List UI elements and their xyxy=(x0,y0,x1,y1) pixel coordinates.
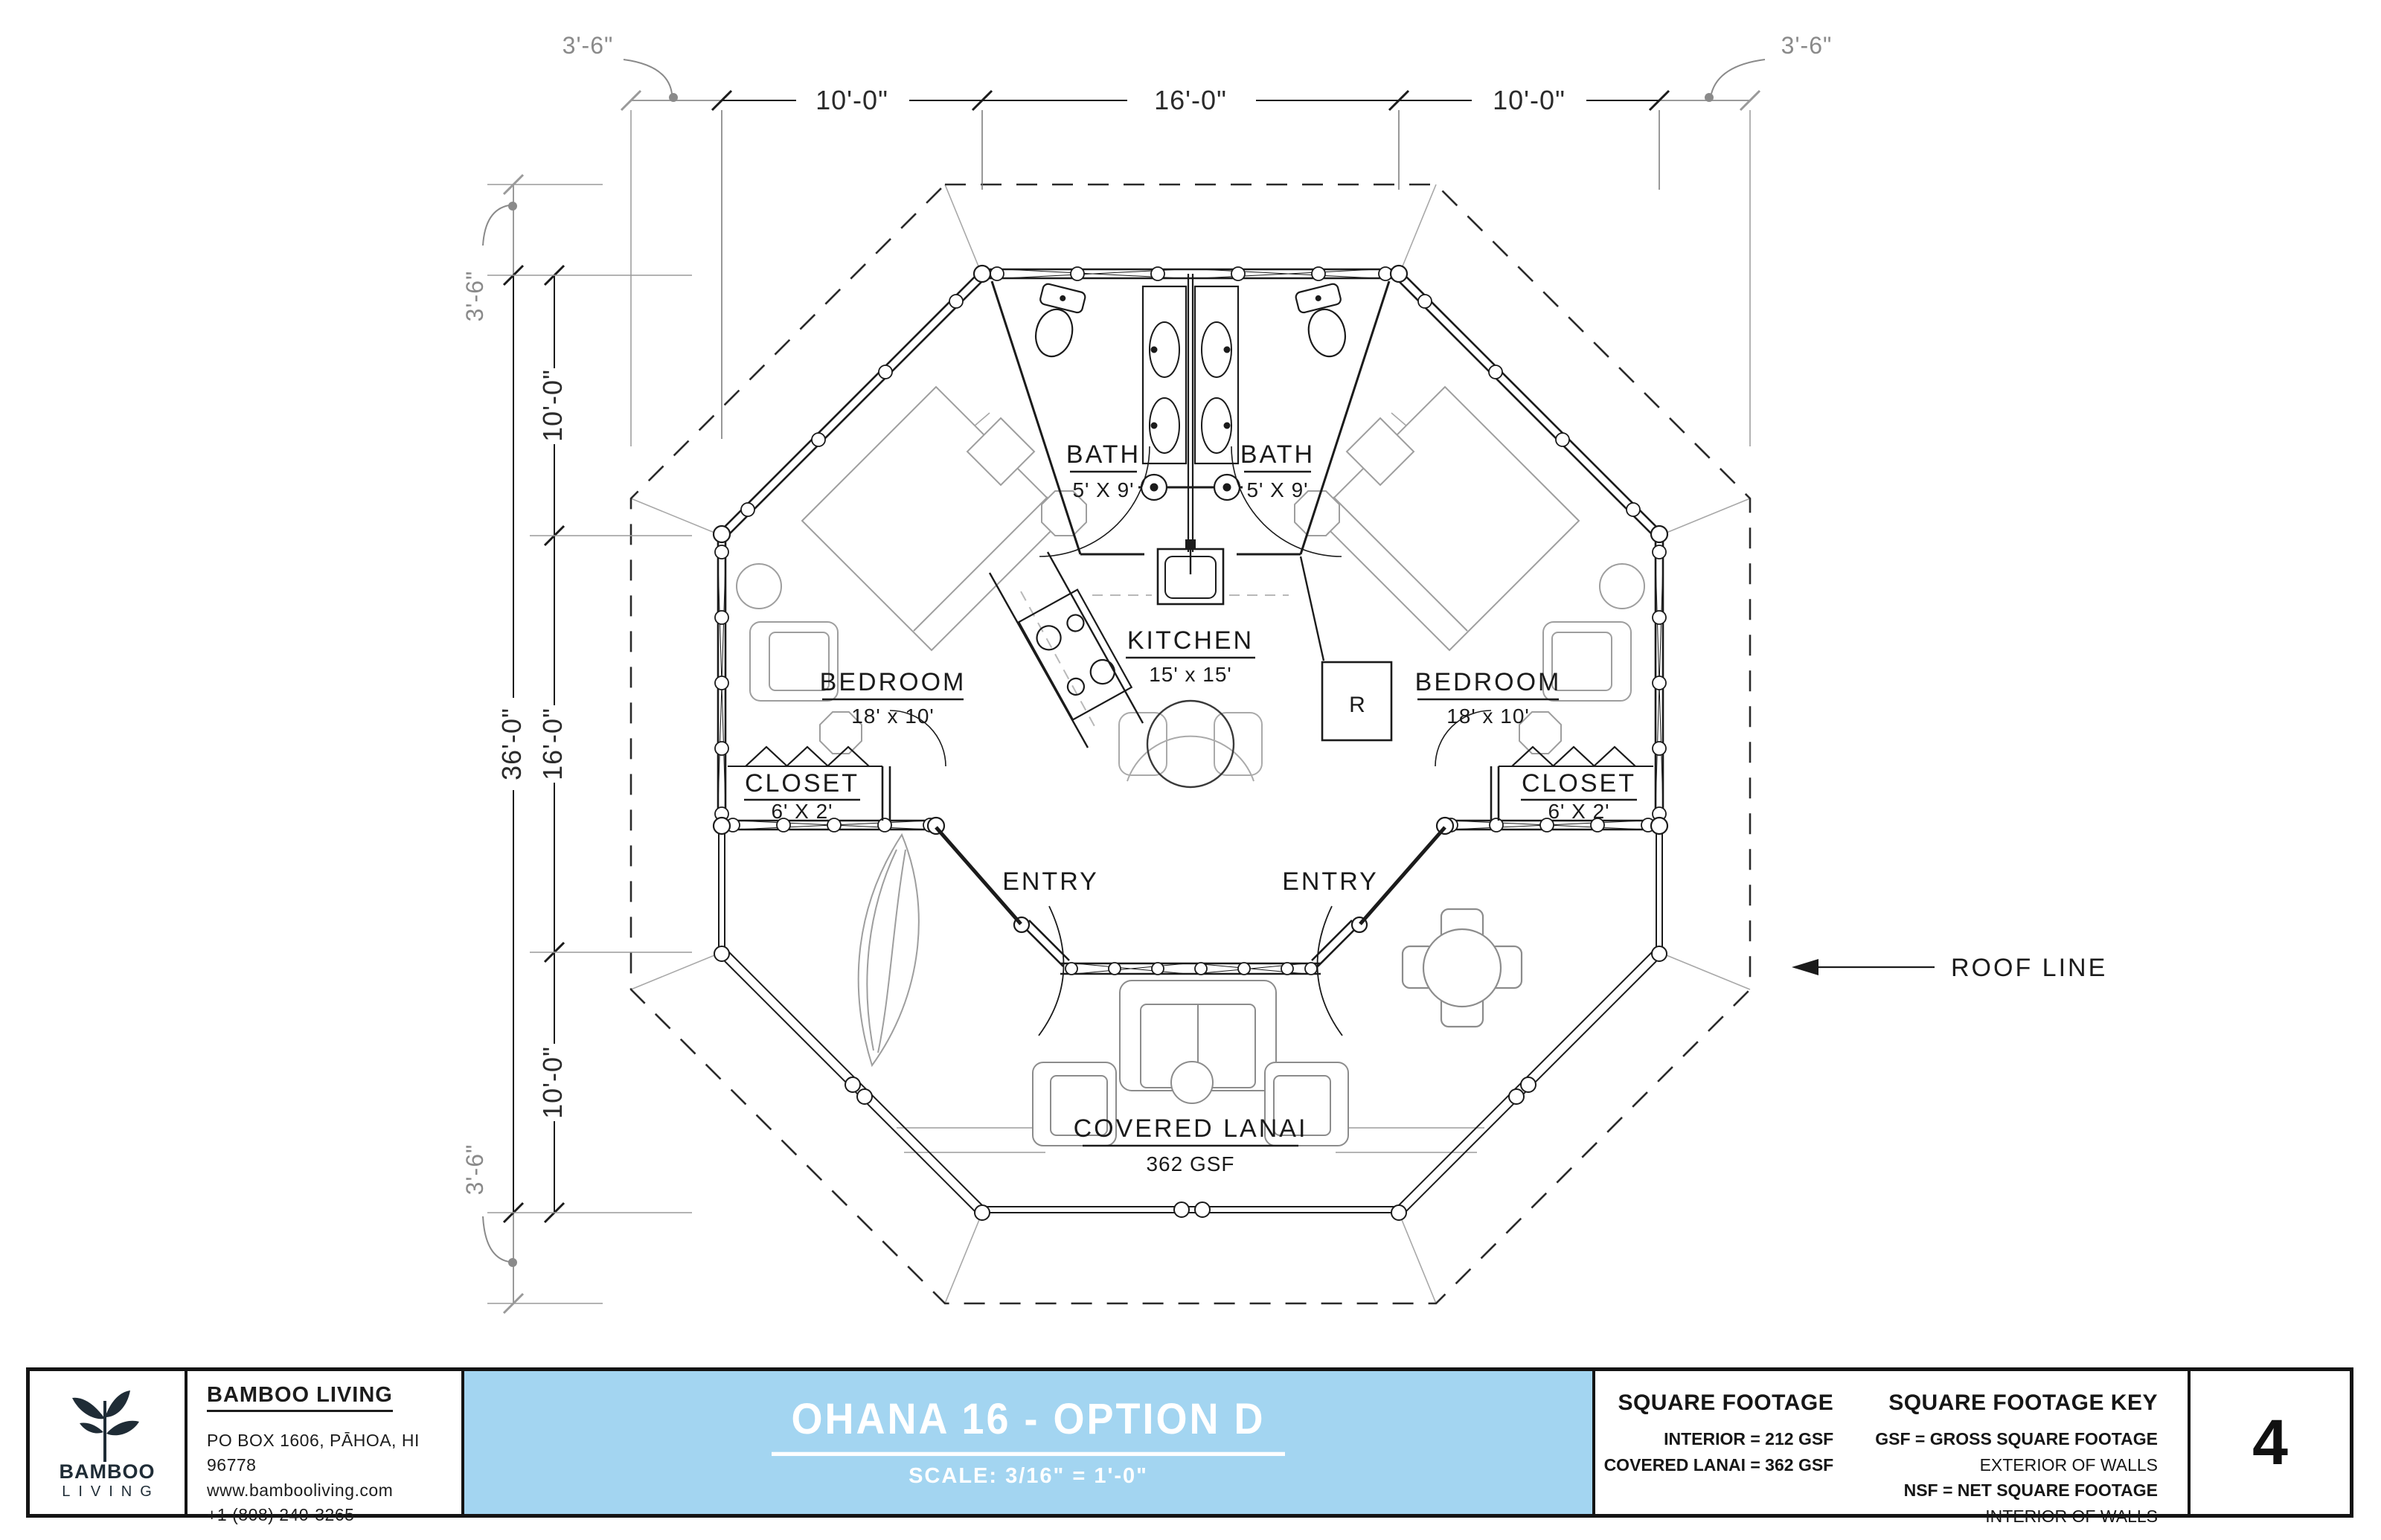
company-info: BAMBOO LIVING PO BOX 1606, PĀHOA, HI 967… xyxy=(188,1371,464,1514)
bedroom-left-size: 18' x 10' xyxy=(851,705,935,728)
logo-line2: LIVING xyxy=(62,1483,160,1501)
closet-right-size: 6' X 2' xyxy=(1548,800,1609,823)
sheet-title-panel: OHANA 16 - OPTION D SCALE: 3/16" = 1'-0" xyxy=(464,1371,1595,1514)
lanai-size: 362 GSF xyxy=(1146,1152,1234,1175)
sheet-title: OHANA 16 - OPTION D xyxy=(772,1394,1284,1456)
dim-left-seg2: 16'-0" xyxy=(537,708,568,780)
logo-line1: BAMBOO xyxy=(60,1460,156,1483)
company-name: BAMBOO LIVING xyxy=(207,1383,393,1412)
square-footage-panel: SQUARE FOOTAGE INTERIOR = 212 GSF COVERE… xyxy=(1595,1371,2191,1514)
kitchen-label: KITCHEN xyxy=(1127,626,1254,655)
bedroom-right-size: 18' x 10' xyxy=(1446,705,1530,728)
surfboard xyxy=(859,835,919,1065)
dim-top-seg3: 10'-0" xyxy=(1493,85,1566,115)
dim-top-overhang-left: 3'-6" xyxy=(563,32,614,59)
company-website[interactable]: www.bambooliving.com xyxy=(207,1478,461,1503)
bed-right xyxy=(1316,387,1579,650)
closet-left-label: CLOSET xyxy=(745,769,859,798)
entry-right-label: ENTRY xyxy=(1282,867,1379,896)
entry-left-label: ENTRY xyxy=(1002,867,1099,896)
roof-line-label: ROOF LINE xyxy=(1951,954,2107,982)
bath-left-size: 5' X 9' xyxy=(1072,478,1134,501)
sf-interior: INTERIOR = 212 GSF xyxy=(1664,1426,1833,1452)
title-block: BAMBOO LIVING BAMBOO LIVING PO BOX 1606,… xyxy=(26,1367,2353,1518)
dim-top-seg2: 16'-0" xyxy=(1154,85,1227,115)
company-phone: +1 (808) 240-3265 xyxy=(207,1503,461,1527)
page-number: 4 xyxy=(2252,1406,2288,1480)
key-gsf: GSF = GROSS SQUARE FOOTAGE xyxy=(1875,1426,2158,1452)
closet-left-size: 6' X 2' xyxy=(771,800,833,823)
sheet-scale: SCALE: 3/16" = 1'-0" xyxy=(909,1464,1148,1489)
company-address: PO BOX 1606, PĀHOA, HI 96778 xyxy=(207,1428,461,1478)
exterior-walls xyxy=(716,269,1665,974)
dim-top-overhang-right: 3'-6" xyxy=(1781,32,1833,59)
bed-left xyxy=(802,387,1065,650)
key-gsf-sub: EXTERIOR OF WALLS xyxy=(1980,1452,2158,1478)
bedroom-right-label: BEDROOM xyxy=(1415,668,1562,696)
page-number-box: 4 xyxy=(2191,1371,2350,1514)
bedroom-left-label: BEDROOM xyxy=(820,668,967,696)
key-nsf-sub: INTERIOR OF WALLS xyxy=(1985,1504,2158,1530)
bath-left-label: BATH xyxy=(1066,440,1141,469)
lanai-dining-set xyxy=(1403,909,1522,1027)
dim-left-seg3: 10'-0" xyxy=(537,1046,568,1119)
dim-top-seg1: 10'-0" xyxy=(815,85,888,115)
bath-right-label: BATH xyxy=(1240,440,1315,469)
key-nsf: NSF = NET SQUARE FOOTAGE xyxy=(1904,1478,2158,1504)
company-logo: BAMBOO LIVING xyxy=(30,1371,188,1514)
floor-plan-drawing: ROOF LINE xyxy=(0,0,2381,1365)
counter-centerlines xyxy=(1021,591,1289,728)
dining-chairs xyxy=(1119,713,1262,781)
bath-right-size: 5' X 9' xyxy=(1246,478,1308,501)
kitchen-size: 15' x 15' xyxy=(1149,663,1232,686)
fridge-label: R xyxy=(1349,693,1365,717)
lanai-label: COVERED LANAI xyxy=(1074,1114,1308,1143)
square-footage-heading: SQUARE FOOTAGE xyxy=(1618,1390,1833,1416)
bamboo-plant-icon xyxy=(59,1387,156,1465)
square-footage-key: SQUARE FOOTAGE KEY GSF = GROSS SQUARE FO… xyxy=(1875,1390,2158,1529)
sf-lanai: COVERED LANAI = 362 GSF xyxy=(1604,1452,1834,1478)
floor-plan-svg: ROOF LINE xyxy=(0,0,2381,1365)
dim-left-overhang-top: 3'-6" xyxy=(461,271,488,322)
roof-line-callout: ROOF LINE xyxy=(1792,954,2107,982)
dimension-top: 3'-6" 10'-0" 16'-0" 10'-0" 3'-6" xyxy=(563,32,1833,446)
bamboo-posts xyxy=(714,266,1667,975)
square-footage-key-heading: SQUARE FOOTAGE KEY xyxy=(1888,1390,2158,1416)
square-footage: SQUARE FOOTAGE INTERIOR = 212 GSF COVERE… xyxy=(1604,1390,1834,1478)
closet-right-label: CLOSET xyxy=(1522,769,1636,798)
sheet: ROOF LINE xyxy=(0,0,2381,1540)
dim-left-overall: 36'-0" xyxy=(496,708,527,780)
dim-left-overhang-bottom: 3'-6" xyxy=(461,1144,488,1196)
dim-left-seg1: 10'-0" xyxy=(537,369,568,442)
dimension-left: 3'-6" 36'-0" 10'-0" 16'-0" 10'-0" 3'-6" xyxy=(461,175,692,1313)
